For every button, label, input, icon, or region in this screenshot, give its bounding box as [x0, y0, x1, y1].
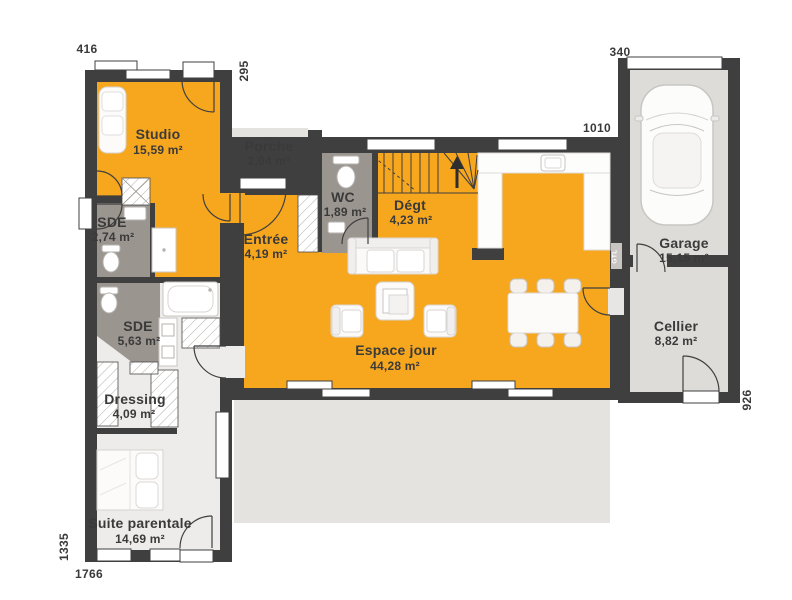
sink-sde1 — [124, 207, 146, 220]
suite-south-window-2 — [150, 549, 180, 561]
room-area-wc: 1,89 m² — [324, 205, 367, 219]
coffee-table — [376, 282, 414, 320]
entry-closet — [298, 195, 318, 252]
room-area-studio: 15,59 m² — [133, 143, 183, 157]
room-area-entree: 4,19 m² — [245, 247, 288, 261]
opening-corridor — [219, 193, 245, 223]
linen-closet — [182, 318, 220, 348]
room-area-cellier: 8,82 m² — [655, 334, 698, 348]
vanity-sde2 — [159, 318, 177, 366]
room-area-espace-jour: 44,28 m² — [370, 359, 420, 373]
room-area-garage: 15,15 m² — [659, 251, 709, 265]
dim-garage-width: 340 — [610, 45, 631, 59]
suite-east-window — [216, 412, 229, 478]
room-label-suite: Suite parentale — [88, 515, 191, 531]
dim-left-height: 1335 — [57, 533, 71, 561]
bay-window-1b — [322, 389, 370, 397]
suite-bed — [97, 450, 163, 510]
room-label-garage: Garage — [659, 235, 708, 251]
room-label-studio: Studio — [136, 126, 181, 142]
basin-wc — [328, 222, 345, 233]
shower-corridor — [152, 228, 176, 272]
floor-plan-page: GTL Studio 15,59 m² Porche 2,04 m² WC 1,… — [0, 0, 792, 600]
bathtub — [163, 282, 218, 316]
entrance-door-threshold — [240, 178, 286, 189]
room-area-degt: 4,23 m² — [390, 213, 433, 227]
dim-right-height: 926 — [740, 390, 754, 411]
dim-left-wing-depth: 295 — [237, 61, 251, 82]
room-label-dressing: Dressing — [104, 391, 166, 407]
armchair-right — [424, 305, 456, 337]
suite-south-window-1 — [97, 549, 131, 561]
room-area-sde1: 2,74 m² — [92, 230, 135, 244]
garage-door — [627, 57, 722, 69]
room-label-espace-jour: Espace jour — [355, 342, 437, 358]
dim-main-width: 1010 — [583, 121, 611, 135]
terrace-area — [234, 400, 610, 523]
gtl-label: GTL — [612, 249, 619, 263]
room-label-degt: Dégt — [394, 197, 426, 213]
room-area-sde2: 5,63 m² — [118, 334, 161, 348]
studio-window-pane2 — [126, 70, 170, 79]
bay-window-2b — [508, 389, 553, 397]
room-label-porche: Porche — [245, 138, 294, 154]
room-label-wc: WC — [331, 189, 355, 205]
main-top-window-1 — [367, 139, 435, 150]
toilet-sde2 — [100, 287, 118, 313]
studio-bed — [99, 87, 126, 153]
dim-top-left: 416 — [77, 42, 98, 56]
room-area-dressing: 4,09 m² — [113, 407, 156, 421]
west-window — [79, 198, 92, 229]
opening-cellier — [608, 288, 624, 315]
sofa — [348, 238, 438, 274]
room-area-porche: 2,04 m² — [248, 154, 291, 168]
studio-door-threshold — [183, 62, 214, 78]
bay-window-2a — [472, 381, 515, 389]
room-area-suite: 14,69 m² — [115, 532, 165, 546]
room-label-sde2: SDE — [123, 318, 152, 334]
studio-window-pane1 — [95, 61, 137, 70]
cellier-door-threshold — [683, 391, 719, 403]
dressing-wardrobe-middle — [130, 362, 158, 374]
car-icon — [635, 85, 719, 225]
floor-plan-svg: GTL Studio 15,59 m² Porche 2,04 m² WC 1,… — [0, 0, 792, 600]
armchair-left — [331, 305, 363, 337]
toilet-sde1 — [102, 245, 120, 272]
main-top-window-2 — [498, 139, 567, 150]
suite-door-threshold — [180, 550, 213, 562]
dining-table — [508, 293, 578, 333]
gtl-box: GTL — [611, 243, 622, 269]
opening-night-corridor — [220, 346, 245, 378]
room-label-cellier: Cellier — [654, 318, 699, 334]
room-label-sde1: SDE — [97, 214, 126, 230]
room-label-entree: Entrée — [244, 231, 289, 247]
dim-bottom-width: 1766 — [75, 567, 103, 581]
bay-window-1a — [287, 381, 332, 389]
